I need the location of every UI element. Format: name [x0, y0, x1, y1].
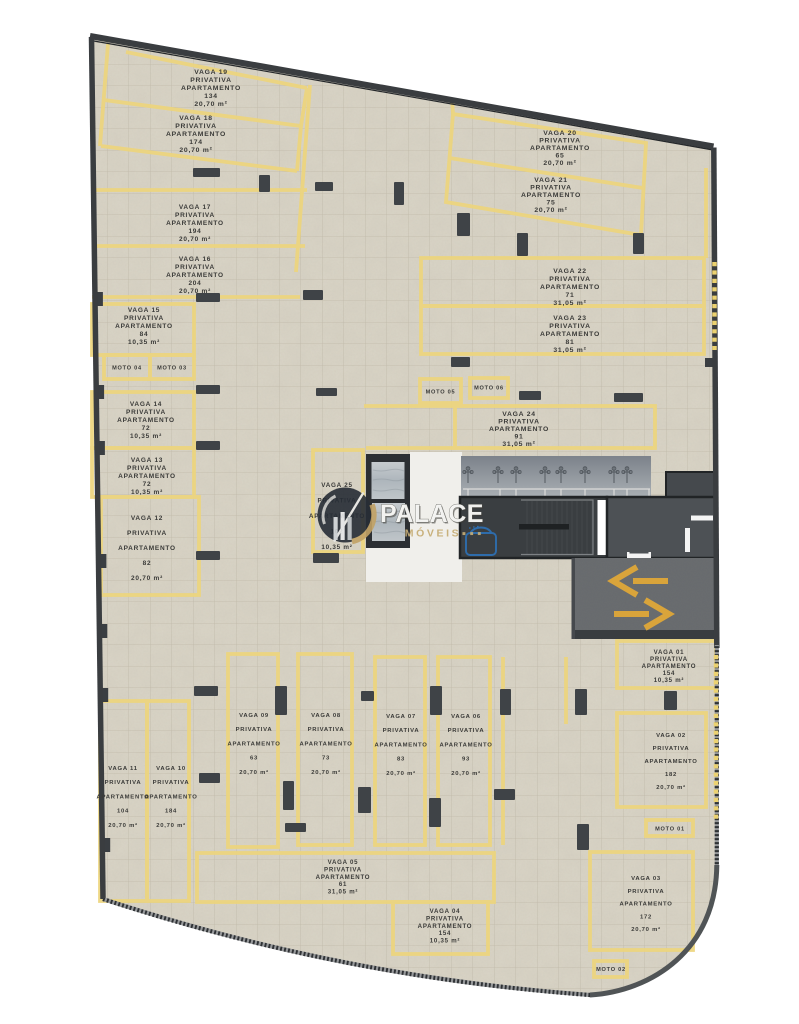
svg-text:84: 84 [140, 331, 149, 338]
svg-text:65: 65 [555, 153, 564, 160]
svg-text:VAGA 04: VAGA 04 [430, 908, 461, 915]
svg-text:APARTAMENTO: APARTAMENTO [115, 323, 173, 330]
svg-text:93: 93 [462, 757, 470, 763]
svg-text:PRIVATIVA: PRIVATIVA [653, 746, 690, 752]
svg-text:APARTAMENTO: APARTAMENTO [530, 145, 590, 152]
svg-text:APARTAMENTO: APARTAMENTO [144, 794, 197, 800]
svg-text:VAGA 17: VAGA 17 [179, 204, 211, 211]
svg-text:APARTAMENTO: APARTAMENTO [118, 545, 176, 552]
svg-text:31,05 m²: 31,05 m² [553, 347, 586, 354]
svg-text:PRIVATIVA: PRIVATIVA [628, 889, 665, 895]
svg-text:20,70 m²: 20,70 m² [179, 147, 212, 154]
svg-text:APARTAMENTO: APARTAMENTO [117, 417, 175, 424]
svg-text:PALACE: PALACE [380, 500, 484, 528]
svg-text:APARTAMENTO: APARTAMENTO [166, 220, 224, 227]
svg-text:172: 172 [640, 914, 652, 920]
svg-text:PRIVATIVA: PRIVATIVA [530, 185, 572, 192]
svg-text:PRIVATIVA: PRIVATIVA [426, 915, 464, 922]
svg-text:75: 75 [546, 200, 555, 207]
svg-text:MOTO 05: MOTO 05 [426, 390, 456, 396]
svg-text:APARTAMENTO: APARTAMENTO [166, 131, 226, 138]
svg-text:31,05 m²: 31,05 m² [328, 889, 358, 896]
svg-text:VAGA 21: VAGA 21 [534, 177, 568, 184]
svg-text:VAGA 20: VAGA 20 [543, 130, 577, 137]
svg-text:204: 204 [188, 280, 201, 287]
svg-text:10,35 m²: 10,35 m² [130, 433, 162, 440]
svg-text:PRIVATIVA: PRIVATIVA [383, 728, 420, 734]
svg-text:PRIVATIVA: PRIVATIVA [175, 212, 215, 219]
svg-text:91: 91 [514, 434, 523, 441]
svg-text:VAGA 23: VAGA 23 [553, 315, 587, 322]
svg-text:20,70 m²: 20,70 m² [179, 236, 211, 243]
svg-text:31,05 m²: 31,05 m² [502, 441, 535, 448]
svg-text:31,05 m²: 31,05 m² [553, 300, 586, 307]
svg-text:APARTAMENTO: APARTAMENTO [316, 874, 371, 881]
svg-text:20,70 m²: 20,70 m² [108, 822, 138, 829]
svg-text:MOTO 01: MOTO 01 [655, 827, 685, 833]
svg-text:PRIVATIVA: PRIVATIVA [549, 276, 591, 283]
svg-text:MÓVEIS: MÓVEIS [405, 527, 461, 540]
svg-text:20,70 m²: 20,70 m² [534, 207, 567, 214]
svg-text:PRIVATIVA: PRIVATIVA [127, 465, 167, 472]
svg-text:82: 82 [143, 560, 152, 567]
svg-text:VAGA 15: VAGA 15 [128, 307, 160, 314]
svg-text:VAGA 10: VAGA 10 [156, 766, 186, 772]
svg-text:APARTAMENTO: APARTAMENTO [489, 426, 549, 433]
svg-text:73: 73 [322, 756, 330, 762]
svg-text:PRIVATIVA: PRIVATIVA [190, 77, 232, 84]
svg-text:VAGA 13: VAGA 13 [131, 457, 163, 464]
svg-text:APARTAMENTO: APARTAMENTO [619, 902, 672, 908]
svg-text:PRIVATIVA: PRIVATIVA [175, 123, 217, 130]
svg-text:20,70 m²: 20,70 m² [386, 770, 416, 777]
svg-text:VAGA 03: VAGA 03 [631, 876, 661, 882]
svg-text:VAGA 12: VAGA 12 [131, 515, 163, 522]
svg-text:20,70 m²: 20,70 m² [194, 101, 227, 108]
svg-text:APARTAMENTO: APARTAMENTO [181, 85, 241, 92]
svg-text:20,70 m²: 20,70 m² [179, 288, 211, 295]
svg-text:71: 71 [565, 292, 574, 299]
svg-text:20,70 m²: 20,70 m² [451, 770, 481, 777]
svg-text:APARTAMENTO: APARTAMENTO [227, 741, 280, 747]
svg-text:174: 174 [189, 139, 203, 146]
svg-text:72: 72 [142, 425, 151, 432]
svg-text:10,35 m²: 10,35 m² [654, 677, 684, 684]
svg-text:MOTO 02: MOTO 02 [596, 967, 626, 973]
svg-text:PRIVATIVA: PRIVATIVA [105, 780, 142, 786]
svg-text:PRIVATIVA: PRIVATIVA [498, 419, 540, 426]
svg-text:20,70 m²: 20,70 m² [631, 926, 661, 933]
svg-text:VAGA 06: VAGA 06 [451, 714, 481, 720]
svg-text:PRIVATIVA: PRIVATIVA [124, 315, 164, 322]
svg-text:154: 154 [663, 670, 675, 677]
svg-text:VAGA 24: VAGA 24 [502, 411, 536, 418]
svg-text:APARTAMENTO: APARTAMENTO [642, 663, 697, 670]
svg-text:APARTAMENTO: APARTAMENTO [540, 331, 600, 338]
svg-text:20,70 m²: 20,70 m² [131, 575, 163, 582]
svg-text:PRIVATIVA: PRIVATIVA [448, 728, 485, 734]
svg-text:20,70 m²: 20,70 m² [156, 822, 186, 829]
svg-text:MOTO 04: MOTO 04 [112, 366, 142, 372]
svg-text:VAGA 09: VAGA 09 [239, 713, 269, 719]
svg-text:20,70 m²: 20,70 m² [239, 769, 269, 776]
svg-text:10,35 m²: 10,35 m² [131, 489, 163, 496]
svg-text:154: 154 [439, 930, 451, 937]
svg-text:MOTO 06: MOTO 06 [474, 386, 504, 392]
svg-text:VAGA 07: VAGA 07 [386, 714, 416, 720]
svg-text:APARTAMENTO: APARTAMENTO [118, 473, 176, 480]
svg-text:APARTAMENTO: APARTAMENTO [439, 742, 492, 748]
svg-text:APARTAMENTO: APARTAMENTO [418, 923, 473, 930]
svg-text:83: 83 [397, 757, 405, 763]
svg-text:VAGA 19: VAGA 19 [194, 69, 228, 76]
svg-text:104: 104 [117, 809, 129, 815]
svg-text:VAGA 08: VAGA 08 [311, 713, 341, 719]
svg-text:APARTAMENTO: APARTAMENTO [644, 759, 697, 765]
svg-text:VAGA 01: VAGA 01 [654, 649, 685, 656]
svg-text:10,35 m²: 10,35 m² [128, 339, 160, 346]
svg-text:VAGA 14: VAGA 14 [130, 401, 162, 408]
svg-text:PRIVATIVA: PRIVATIVA [549, 323, 591, 330]
svg-text:■ ■ ■: ■ ■ ■ [462, 532, 482, 538]
svg-text:PRIVATIVA: PRIVATIVA [126, 409, 166, 416]
svg-text:10,35 m²: 10,35 m² [430, 938, 460, 945]
svg-text:10,35 m²: 10,35 m² [321, 544, 352, 551]
svg-text:72: 72 [143, 481, 152, 488]
svg-text:APARTAMENTO: APARTAMENTO [521, 192, 581, 199]
svg-text:APARTAMENTO: APARTAMENTO [374, 742, 427, 748]
svg-text:194: 194 [188, 228, 201, 235]
svg-text:PRIVATIVA: PRIVATIVA [324, 866, 362, 873]
svg-text:20,70 m²: 20,70 m² [311, 769, 341, 776]
svg-text:PRIVATIVA: PRIVATIVA [175, 264, 215, 271]
svg-text:PRIVATIVA: PRIVATIVA [127, 530, 167, 537]
svg-text:VAGA 22: VAGA 22 [553, 268, 587, 275]
svg-text:184: 184 [165, 809, 177, 815]
svg-text:20,70 m²: 20,70 m² [543, 160, 576, 167]
svg-text:61: 61 [339, 881, 347, 888]
svg-text:VAGA 18: VAGA 18 [179, 115, 213, 122]
svg-text:182: 182 [665, 772, 677, 778]
svg-text:VAGA 16: VAGA 16 [179, 256, 211, 263]
svg-text:PRIVATIVA: PRIVATIVA [650, 656, 688, 663]
svg-text:APARTAMENTO: APARTAMENTO [540, 284, 600, 291]
svg-text:81: 81 [565, 339, 574, 346]
svg-text:PRIVATIVA: PRIVATIVA [308, 727, 345, 733]
svg-text:20,70 m²: 20,70 m² [656, 784, 686, 791]
svg-text:APARTAMENTO: APARTAMENTO [96, 794, 149, 800]
svg-text:MOTO 03: MOTO 03 [157, 366, 187, 372]
svg-text:APARTAMENTO: APARTAMENTO [299, 741, 352, 747]
svg-text:VAGA 05: VAGA 05 [328, 859, 359, 866]
svg-text:134: 134 [204, 93, 218, 100]
svg-text:VAGA 11: VAGA 11 [108, 766, 137, 772]
svg-text:PRIVATIVA: PRIVATIVA [539, 138, 581, 145]
svg-text:APARTAMENTO: APARTAMENTO [166, 272, 224, 279]
svg-text:VAGA 02: VAGA 02 [656, 733, 686, 739]
svg-text:63: 63 [250, 756, 258, 762]
svg-text:PRIVATIVA: PRIVATIVA [236, 727, 273, 733]
svg-text:PRIVATIVA: PRIVATIVA [153, 780, 190, 786]
